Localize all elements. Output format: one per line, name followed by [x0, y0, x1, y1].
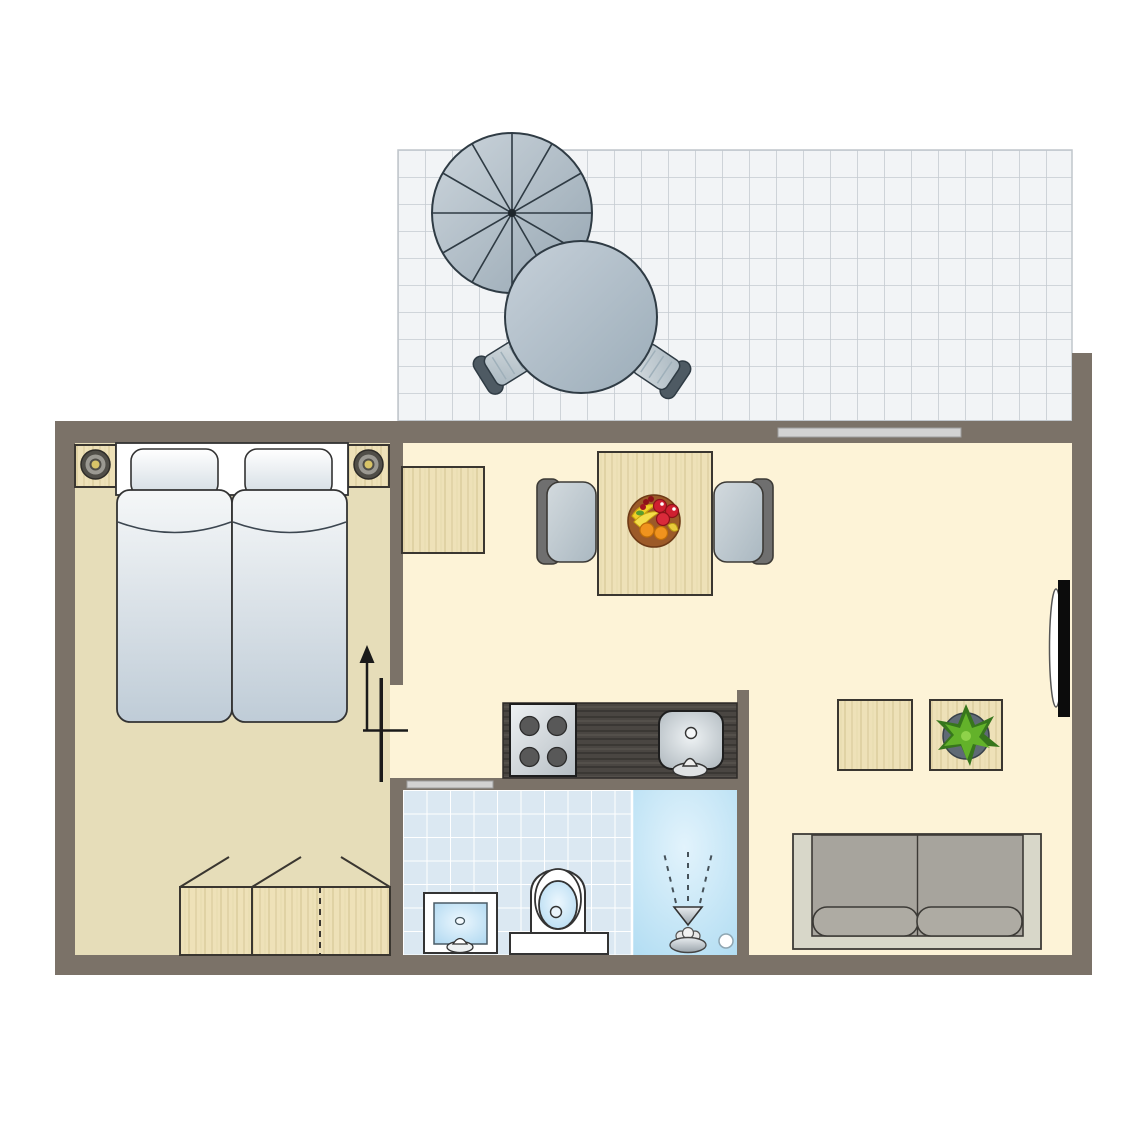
- wall-bedroom-lower: [390, 780, 403, 955]
- burner-icon: [520, 717, 539, 736]
- terrace: [398, 133, 1072, 421]
- leaf: [636, 511, 644, 516]
- lamp-icon: [81, 450, 110, 479]
- fruit-bowl-icon: [628, 495, 680, 547]
- wall-bathroom-right: [737, 690, 749, 955]
- mattress-left: [117, 490, 232, 722]
- kitchen: [503, 703, 737, 778]
- sink-drain-icon: [686, 728, 697, 739]
- terrace-table: [505, 241, 657, 393]
- washbasin: [424, 893, 497, 953]
- burner-icon: [548, 717, 567, 736]
- kitchen-sink: [659, 711, 723, 777]
- bathroom: [403, 790, 737, 955]
- orange: [640, 523, 654, 537]
- bathroom-door: [407, 781, 493, 788]
- wall-cabinet: [402, 467, 484, 553]
- wall-right: [1072, 353, 1092, 975]
- basin-drain-icon: [456, 918, 465, 925]
- orange: [655, 527, 668, 540]
- dining-chair-left: [537, 479, 596, 564]
- pillow-left: [131, 449, 218, 496]
- sofa: [793, 834, 1041, 949]
- terrace-sliding-door: [778, 428, 961, 437]
- tv-panel: [1058, 580, 1070, 717]
- toilet-tank: [510, 933, 608, 954]
- shower-drain-icon: [719, 934, 733, 948]
- apple: [654, 500, 667, 513]
- wall-left: [55, 421, 75, 975]
- sofa-seat-cushion: [917, 907, 1022, 936]
- floor-plan-svg: [0, 0, 1145, 1145]
- stove: [510, 704, 576, 776]
- tv: [1050, 580, 1071, 717]
- sofa-seat-cushion: [813, 907, 918, 936]
- apple: [657, 513, 670, 526]
- burner-icon: [520, 748, 539, 767]
- double-bed: [116, 443, 348, 722]
- floor-plan: [0, 0, 1145, 1145]
- dining-chair-right: [714, 479, 773, 564]
- mattress-right: [232, 490, 347, 722]
- wall-bottom: [55, 955, 1092, 975]
- pillow-right: [245, 449, 332, 496]
- burner-icon: [548, 748, 567, 767]
- side-table: [838, 700, 912, 770]
- lamp-icon: [354, 450, 383, 479]
- toilet-drain-icon: [551, 907, 562, 918]
